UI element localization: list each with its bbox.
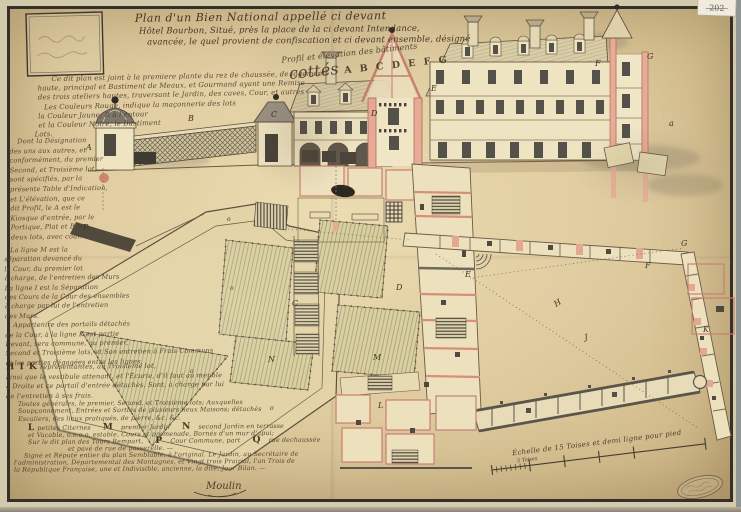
scale-subcaption: 5 Toises <box>517 456 538 464</box>
plan-label: E <box>464 270 471 279</box>
stairs <box>432 196 460 214</box>
elevation-label: F <box>594 59 601 68</box>
plan-label: J <box>582 332 590 342</box>
intro-paragraph: Ce dit plan est joint à la premiere plan… <box>37 69 368 140</box>
elevation-label: E <box>430 84 437 93</box>
tower-roof <box>602 10 632 38</box>
letter-key: Q <box>253 435 262 445</box>
scale-bar: Échelle de 15 Toises et demi ligne pour … <box>490 425 706 476</box>
pink-mark <box>333 222 338 231</box>
archive-tag: 202 <box>698 0 737 16</box>
plan-label: G <box>681 239 688 248</box>
wing-apse <box>694 376 707 389</box>
hik-key: H I K <box>6 362 38 372</box>
lmn-text: rue dechaussée <box>269 437 321 444</box>
plan-label: o <box>230 285 234 292</box>
corner-annotation-box <box>26 12 104 76</box>
plan-label: F <box>644 261 651 270</box>
stairs <box>436 318 466 338</box>
legend-lmn-block: L petites Citernes M premier Jardin N se… <box>28 421 508 453</box>
southeast-wing <box>473 370 707 431</box>
plan-label: o <box>227 216 231 223</box>
grille-room <box>386 202 402 222</box>
lmn-text: Cour Commune, part <box>170 437 240 445</box>
collection-stamp-icon <box>675 471 725 503</box>
plan-label: H <box>551 297 563 309</box>
signature: Moulin <box>194 481 246 497</box>
plan-label: D <box>395 283 403 292</box>
title-line: Plan d'un Bien National appellé ci devan… <box>135 8 470 25</box>
legend-column-2: La ligne M est la séparation devancé du … <box>4 244 191 369</box>
signature-text: Moulin <box>205 481 242 492</box>
archive-number: 202 <box>709 3 725 13</box>
quarter-round-steps <box>476 254 491 269</box>
stairs-top <box>254 202 288 230</box>
closing-block: Signé et Réputé entier du plan Semblable… <box>14 449 494 473</box>
legend-column-1: Dont la Désignation des uns aux autres, … <box>9 135 183 244</box>
plan-label: K <box>702 325 710 334</box>
legend-hik-block: H I K représentantes, au Troisième lot, … <box>6 359 456 402</box>
scale-caption: Échelle de 15 Toises et demi ligne pour … <box>511 428 683 458</box>
elevation-label: a <box>669 119 674 128</box>
legend-general-block: Toutes générales, le premier, Second, et… <box>18 397 468 423</box>
plan-label: C <box>292 299 298 308</box>
elevation-label: D <box>370 109 378 118</box>
elevation-label: G <box>647 52 654 61</box>
legend-line-text: représentantes, au Troisième lot, <box>40 362 156 371</box>
finial-ball-icon <box>614 4 619 9</box>
